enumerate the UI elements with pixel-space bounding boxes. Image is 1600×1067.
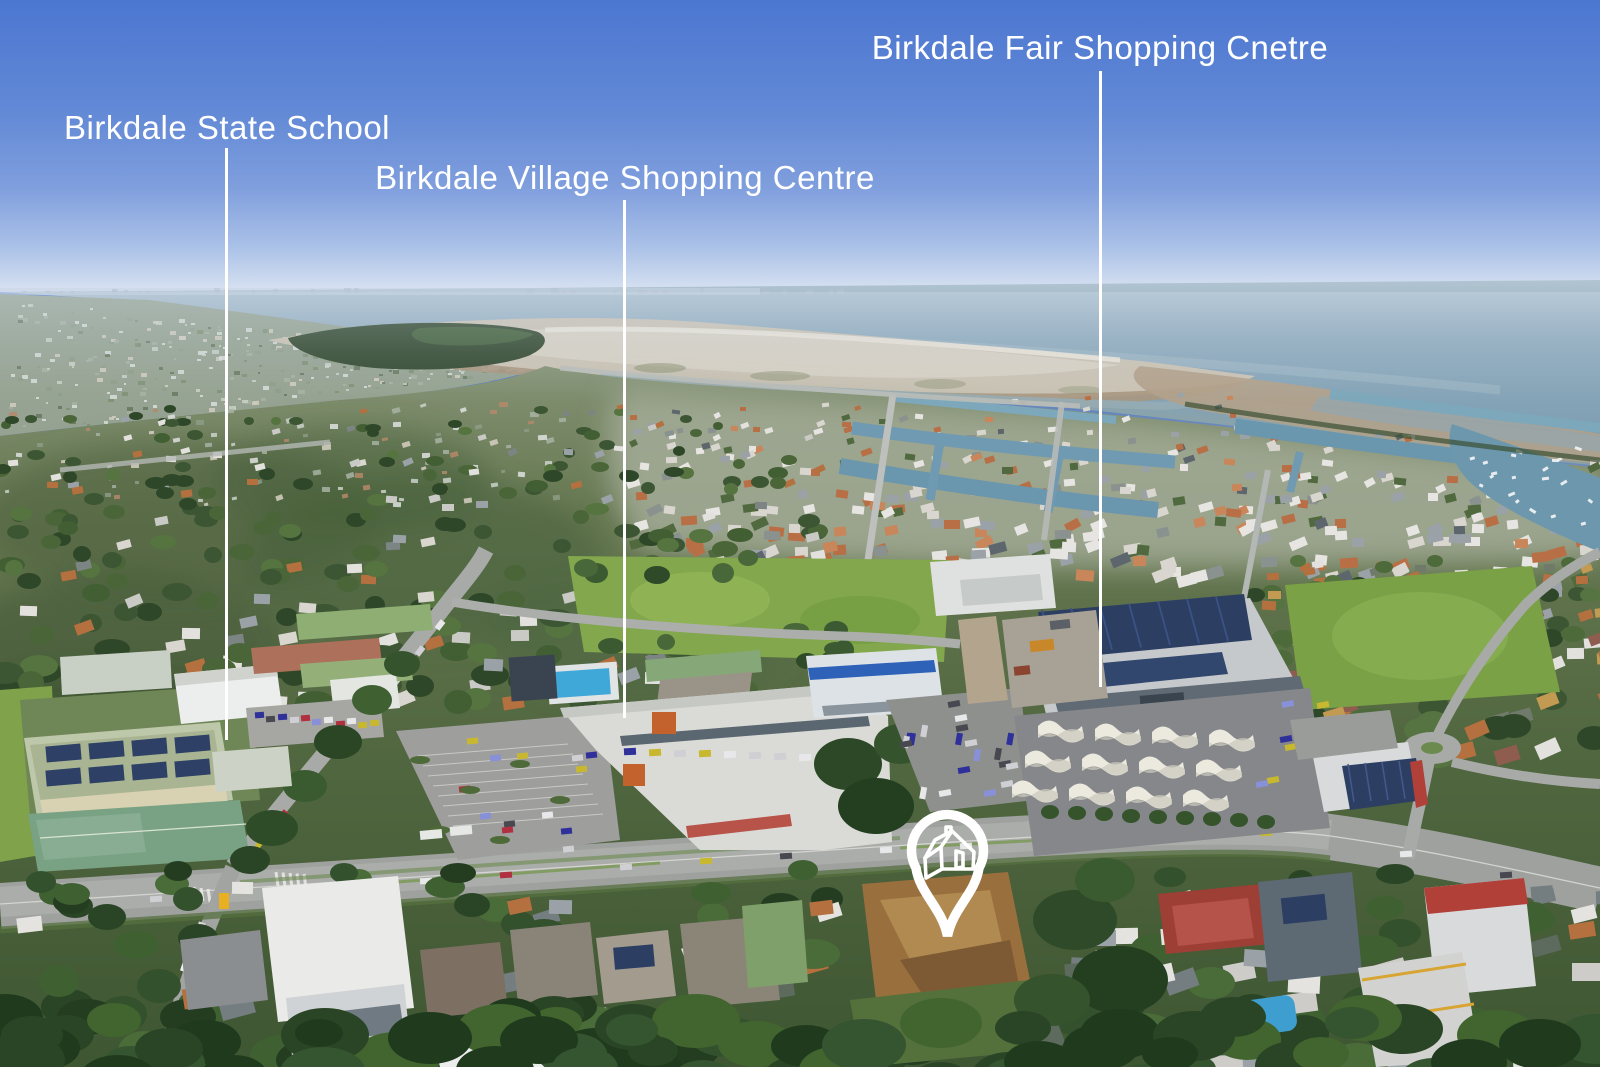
svg-text:Birkdale Village Shopping Cent: Birkdale Village Shopping Centre xyxy=(375,159,875,196)
svg-text:Birkdale State School: Birkdale State School xyxy=(64,109,390,146)
svg-text:Birkdale Fair Shopping Cnetre: Birkdale Fair Shopping Cnetre xyxy=(872,29,1329,66)
